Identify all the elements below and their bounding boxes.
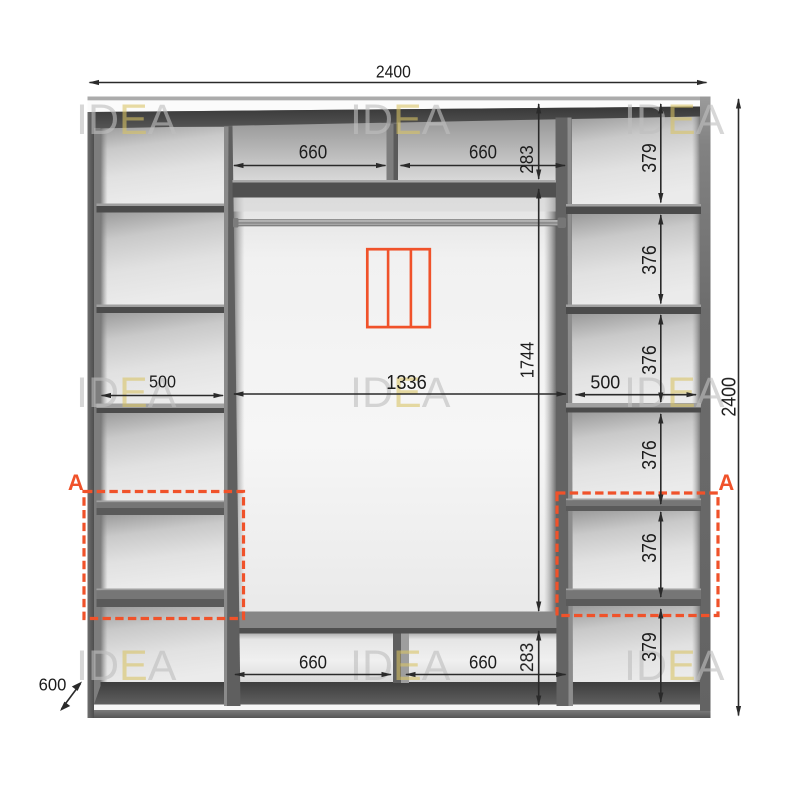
svg-text:1336: 1336 bbox=[386, 371, 427, 394]
svg-text:376: 376 bbox=[638, 345, 661, 375]
svg-text:376: 376 bbox=[638, 245, 661, 275]
svg-text:2400: 2400 bbox=[376, 61, 411, 81]
svg-text:1744: 1744 bbox=[517, 342, 538, 378]
svg-text:379: 379 bbox=[638, 632, 661, 662]
svg-text:600: 600 bbox=[39, 675, 67, 695]
svg-text:283: 283 bbox=[516, 145, 537, 174]
svg-text:IDEA: IDEA bbox=[76, 96, 177, 144]
svg-text:660: 660 bbox=[469, 142, 497, 163]
svg-text:IDEA: IDEA bbox=[624, 369, 725, 417]
svg-text:500: 500 bbox=[590, 372, 620, 392]
svg-text:379: 379 bbox=[638, 143, 661, 173]
svg-text:500: 500 bbox=[149, 371, 176, 391]
svg-text:A: A bbox=[68, 470, 84, 495]
svg-text:660: 660 bbox=[299, 143, 327, 164]
svg-text:2400: 2400 bbox=[718, 377, 740, 417]
svg-text:660: 660 bbox=[469, 651, 497, 672]
svg-text:IDEA: IDEA bbox=[624, 96, 725, 144]
svg-text:IDEA: IDEA bbox=[76, 642, 177, 690]
svg-text:A: A bbox=[718, 470, 734, 495]
svg-text:660: 660 bbox=[299, 651, 327, 672]
svg-text:376: 376 bbox=[638, 533, 661, 563]
svg-text:IDEA: IDEA bbox=[350, 96, 451, 144]
svg-text:283: 283 bbox=[516, 643, 537, 672]
svg-text:376: 376 bbox=[638, 440, 661, 470]
svg-text:IDEA: IDEA bbox=[350, 642, 451, 690]
